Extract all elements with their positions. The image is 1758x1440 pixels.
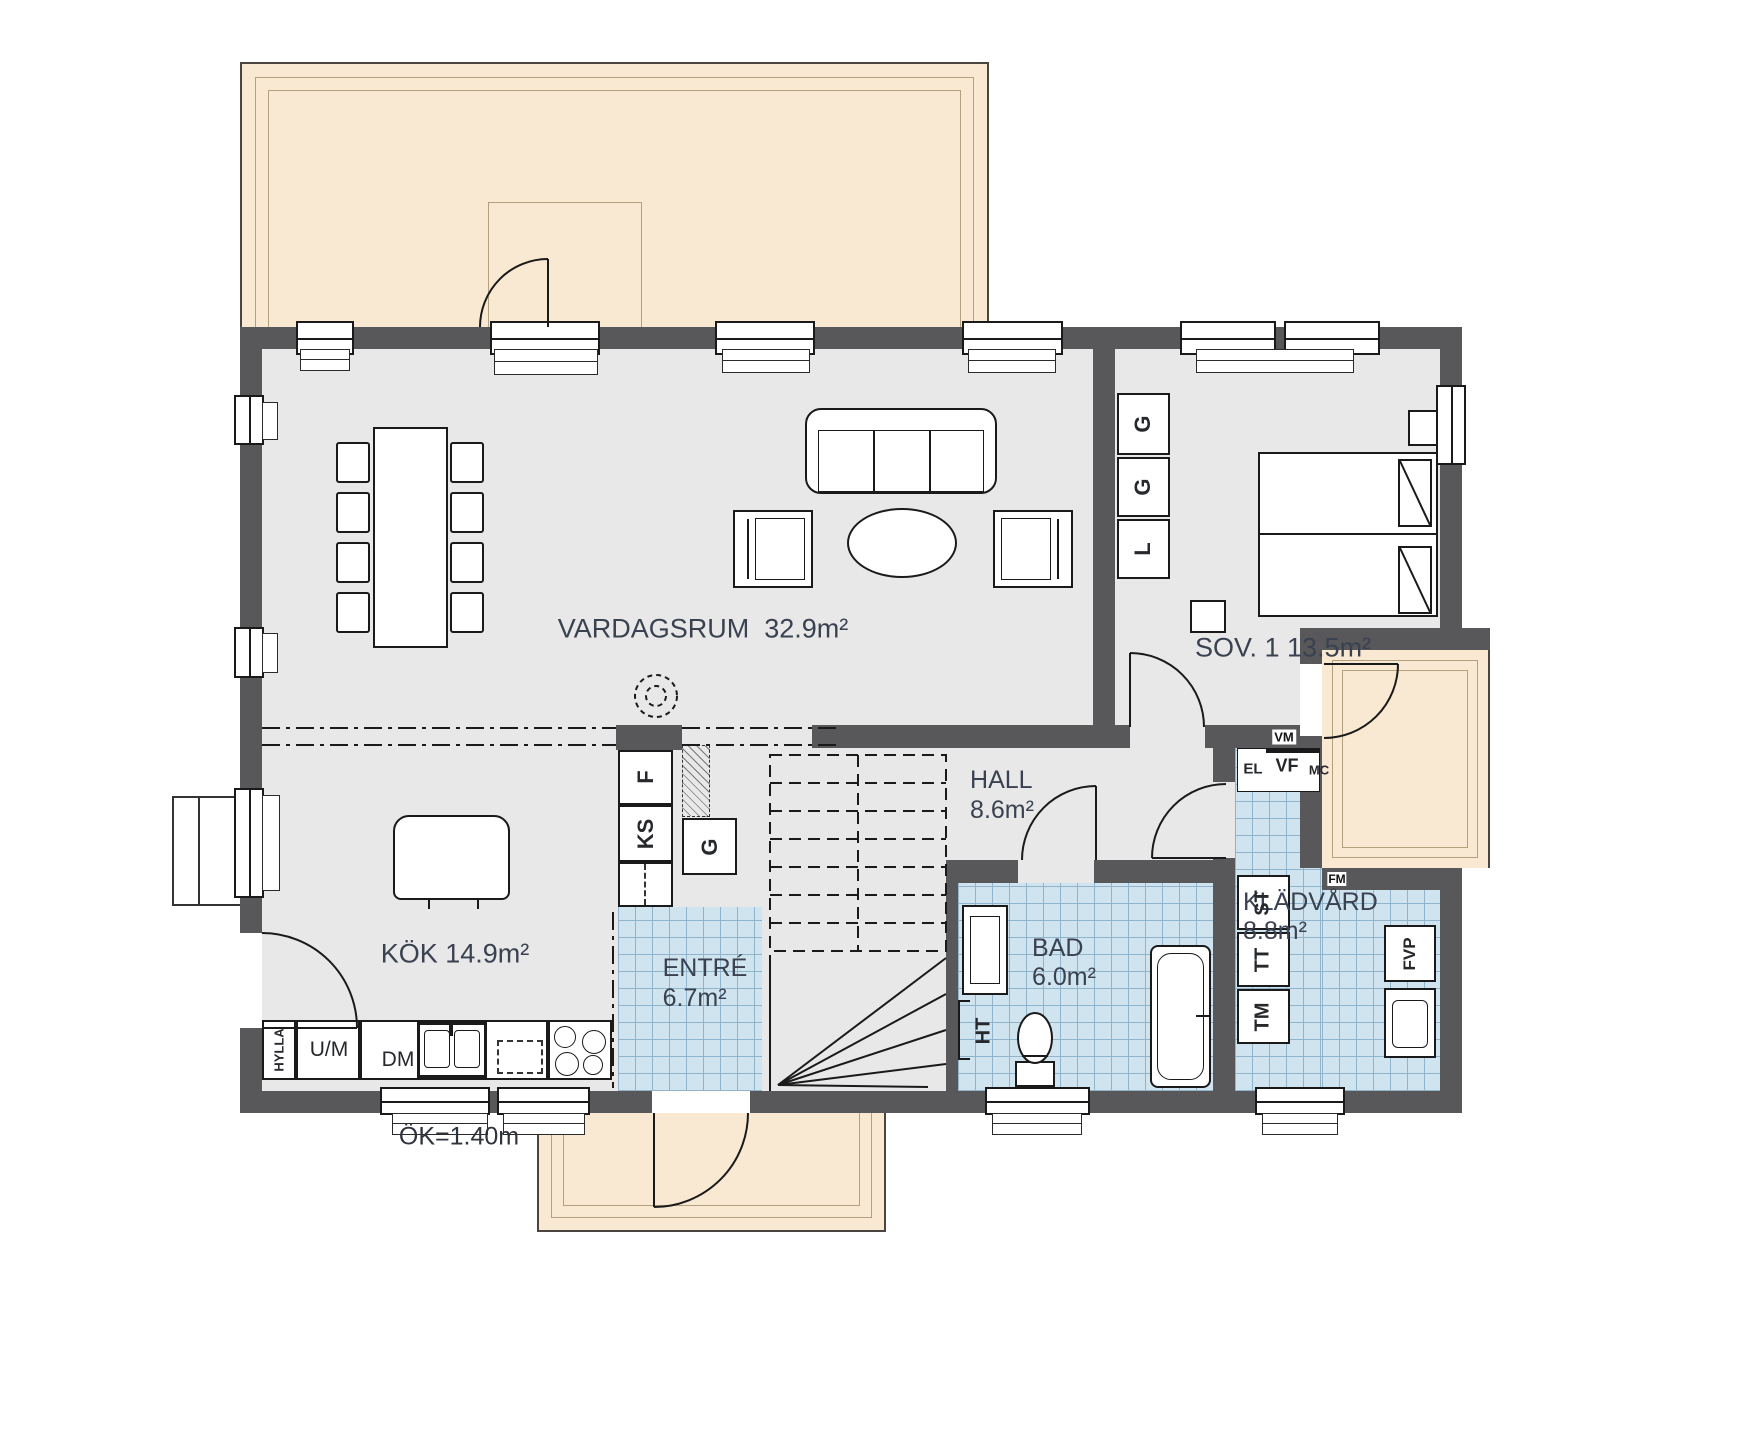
kladvard-sink-basin <box>1392 1000 1428 1048</box>
floorplan-canvas: VARDAGSRUM 32.9m² SOV. 1 13.5m² KÖK 14.9… <box>0 0 1758 1440</box>
wall-bedroom-south-a <box>1093 725 1130 748</box>
nightstand <box>1408 410 1438 446</box>
room-area: 8.8m² <box>1243 917 1378 946</box>
dining-table <box>373 427 448 648</box>
door-gap-front <box>652 1091 750 1113</box>
room-label-kok: KÖK 14.9m² <box>381 939 530 970</box>
island-tick <box>428 900 430 909</box>
sill-bedroom <box>1196 349 1354 373</box>
kitchen-island <box>393 815 510 900</box>
wall-bad-east-upper <box>1213 748 1235 782</box>
room-name: HALL <box>970 765 1034 795</box>
label-wardrobe-g2: G <box>1130 478 1156 495</box>
door-gap-patio <box>1300 664 1322 736</box>
island-tick <box>477 900 479 909</box>
window-kitchen-south-2 <box>497 1087 590 1115</box>
dining-chair <box>450 592 484 633</box>
bathtub-inner <box>1157 953 1204 1080</box>
vent-shaft <box>682 745 710 817</box>
bath-sink-basin <box>970 916 1000 984</box>
sink-faucet <box>449 1024 453 1036</box>
sill-bad-south <box>992 1113 1082 1135</box>
wall-kitchen-cab-anchor <box>616 725 682 750</box>
label-mc: MC <box>1309 763 1329 778</box>
counter-appliance-space <box>497 1040 543 1074</box>
appliance-row-bar <box>1266 748 1320 753</box>
wall-right-lower <box>1440 868 1462 1113</box>
label-dm: DM <box>382 1048 415 1072</box>
label-ht: HT <box>973 1018 996 1045</box>
armchair-left-back <box>747 519 749 579</box>
room-label-entre: ENTRÉ 6.7m² <box>663 953 748 1013</box>
terrace-top <box>240 62 989 330</box>
window-bad-south <box>985 1087 1090 1115</box>
stove-burner <box>555 1052 579 1076</box>
room-area: 14.9m² <box>445 939 529 969</box>
bedroom-stool <box>1190 600 1226 633</box>
room-area: 6.7m² <box>663 983 748 1013</box>
window-left-2 <box>234 627 264 678</box>
label-tm: TM <box>1252 1003 1275 1032</box>
side-entrance-stoop-step <box>198 798 200 904</box>
room-name: ENTRÉ <box>663 953 748 983</box>
sill-left-1 <box>262 402 278 440</box>
towel-dryer <box>958 1000 970 1060</box>
armchair-left-seat <box>755 518 805 580</box>
bed-pillow <box>1398 546 1432 614</box>
window-height-text: ÖK=1.40m <box>399 1123 519 1151</box>
sink-basin <box>424 1030 450 1068</box>
room-label-hall: HALL 8.6m² <box>970 765 1034 825</box>
terrace-top-landing <box>488 202 642 332</box>
label-fm: FM <box>1327 872 1346 886</box>
terrace-patio-right <box>1322 650 1490 868</box>
room-area: 8.6m² <box>970 795 1034 825</box>
sill-top-2 <box>722 349 810 373</box>
window-left-1 <box>234 395 264 445</box>
armchair-right-seat <box>1001 518 1051 580</box>
sofa-seats <box>818 430 984 492</box>
dining-chair <box>450 442 484 483</box>
annotation-window-height: ÖK=1.40m <box>399 1123 519 1152</box>
label-vf: VF <box>1275 756 1298 777</box>
label-wardrobe-g1: G <box>1130 415 1156 432</box>
dining-chair <box>450 492 484 533</box>
label-el: EL <box>1243 761 1262 778</box>
dining-chair <box>336 492 370 533</box>
door-gap-left <box>240 933 262 1028</box>
bed-midline <box>1260 533 1436 535</box>
room-area: 13.5m² <box>1287 633 1371 663</box>
sill-kladvard-south <box>1262 1113 1338 1135</box>
sink-basin <box>454 1030 480 1068</box>
label-freezer: F <box>633 770 659 783</box>
label-wardrobe-l: L <box>1130 542 1156 555</box>
wall-bad-north-b <box>1094 860 1213 883</box>
label-st: ST <box>1252 890 1275 916</box>
wall-top <box>240 327 1462 349</box>
bed-pillow <box>1398 459 1432 527</box>
label-um: U/M <box>310 1038 349 1062</box>
window-kladvard-south <box>1255 1087 1345 1115</box>
label-fvp: FVP <box>1400 937 1420 970</box>
room-name: BAD <box>1032 934 1096 963</box>
wall-hall-north <box>812 725 1093 748</box>
wall-bad-north-a <box>946 860 1018 883</box>
dining-chair <box>336 542 370 583</box>
room-name: VARDAGSRUM <box>558 614 750 644</box>
wall-bedroom-west <box>1093 327 1115 748</box>
sill-top-3 <box>968 349 1056 373</box>
sill-terrace-door <box>494 349 598 375</box>
stove-burner <box>582 1030 606 1054</box>
window-kitchen-south-1 <box>380 1087 490 1115</box>
sill-left-2 <box>262 633 278 673</box>
room-label-bad: BAD 6.0m² <box>1032 934 1096 992</box>
dining-chair <box>336 442 370 483</box>
sofa-seat-divider <box>873 431 875 491</box>
armchair-right-back <box>1057 519 1059 579</box>
room-label-sov1: SOV. 1 13.5m² <box>1195 633 1371 664</box>
window-bedroom-east <box>1436 385 1466 465</box>
sill-top-1 <box>300 349 350 371</box>
sill-left-kitchen <box>262 795 280 891</box>
window-left-kitchen <box>234 788 264 898</box>
wall-stair-east <box>946 860 958 1091</box>
wall-right-upper <box>1440 327 1462 650</box>
coffee-table <box>847 508 957 578</box>
sofa-seat-divider <box>929 431 931 491</box>
room-area: 6.0m² <box>1032 963 1096 992</box>
label-tt: TT <box>1252 948 1275 972</box>
stove-burner <box>554 1026 576 1048</box>
dining-chair <box>450 542 484 583</box>
terrace-patio-frame-inner <box>1342 670 1468 848</box>
stove-burner <box>583 1055 603 1075</box>
label-fridge: KS <box>633 819 659 850</box>
room-area: 32.9m² <box>764 614 848 644</box>
dining-chair <box>336 592 370 633</box>
room-name: SOV. 1 <box>1195 633 1280 663</box>
label-cabinet-g: G <box>697 838 723 855</box>
wall-bad-east-lower <box>1213 858 1235 1091</box>
room-label-vardagsrum: VARDAGSRUM 32.9m² <box>558 614 849 645</box>
label-vm: VM <box>1272 730 1296 745</box>
label-hylla: HYLLA <box>272 1028 287 1071</box>
cabinet-blank-divider <box>644 864 646 905</box>
room-name: KÖK <box>381 939 438 969</box>
